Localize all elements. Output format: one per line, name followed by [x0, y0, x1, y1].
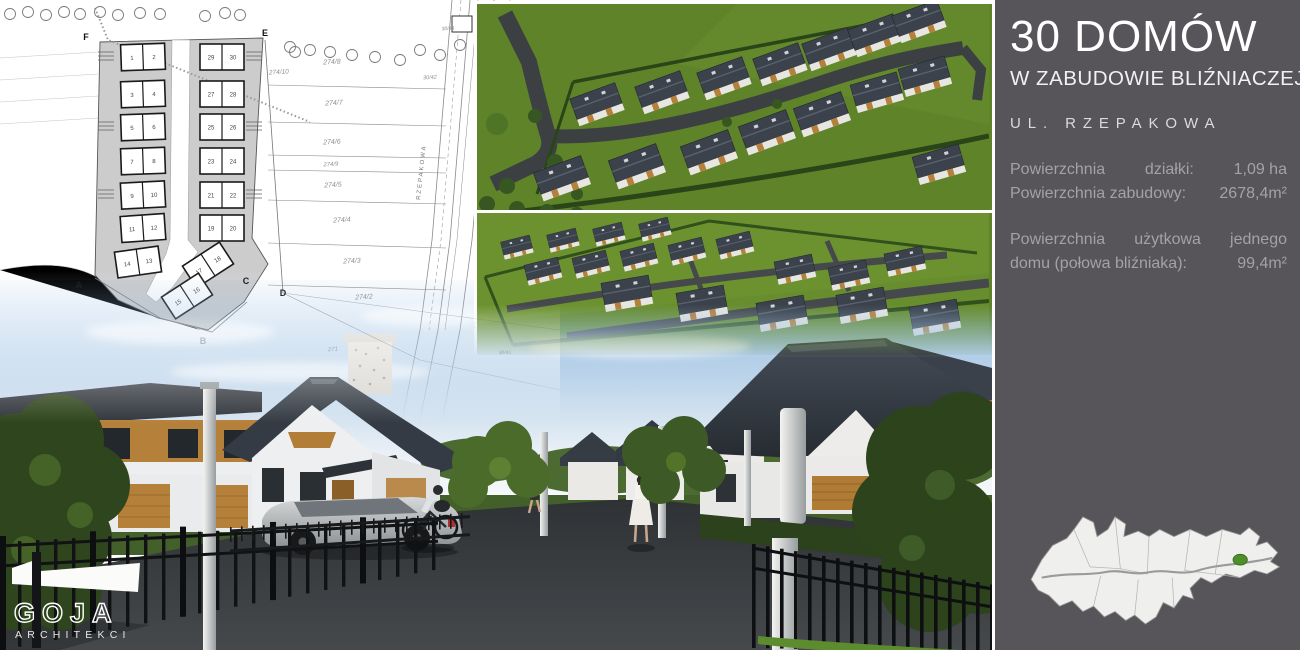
- spec-label: jednego: [1230, 228, 1287, 252]
- logo-roof-mark: [12, 559, 140, 592]
- parcel-number: 274/4: [332, 217, 351, 225]
- boundary-letter: B: [200, 336, 207, 346]
- fence-bar: [864, 563, 868, 650]
- fence-bar: [822, 556, 826, 650]
- spec-label: użytkowa: [1134, 228, 1201, 252]
- fence-bar: [342, 524, 345, 587]
- fence-bar: [439, 514, 441, 529]
- fence-bar: [324, 525, 327, 590]
- wood-accent: [690, 312, 697, 320]
- plot-number: 20: [230, 227, 237, 233]
- plot-number: 22: [230, 194, 237, 200]
- fence-bar: [780, 549, 784, 649]
- plot-number: 19: [208, 227, 215, 233]
- plot-number: 25: [208, 126, 215, 132]
- fence-bar: [285, 524, 287, 539]
- plot-duplex: 78: [121, 147, 166, 175]
- plot-duplex: 34: [121, 80, 166, 108]
- wood-accent: [770, 322, 777, 330]
- fence-bar: [414, 520, 417, 573]
- fence-bar: [263, 525, 265, 540]
- plot-number: 11: [129, 227, 136, 233]
- plot-duplex: 2122: [200, 182, 244, 208]
- plot-duplex: 910: [120, 181, 165, 209]
- plot-number: 28: [230, 93, 237, 99]
- wood-accent: [923, 326, 930, 334]
- fence-bar: [241, 526, 243, 541]
- plot-number: 21: [208, 194, 215, 200]
- info-panel: 30 DOMÓW W ZABUDOWIE BLIŹNIACZEJ UL. RZE…: [992, 0, 1300, 650]
- fence-bar: [808, 554, 812, 650]
- fence-bar: [962, 580, 966, 650]
- location-marker: [1233, 554, 1247, 565]
- fence-bar: [362, 519, 364, 534]
- spec-label: działki:: [1145, 158, 1194, 182]
- parcel-number: 274/10: [268, 68, 290, 76]
- fence-bar: [307, 522, 309, 537]
- fence-bar: [766, 546, 770, 648]
- fence-bar: [395, 517, 397, 532]
- fence-bar: [318, 522, 320, 537]
- plot-number: 10: [151, 193, 159, 199]
- fence-bar: [461, 513, 463, 528]
- pillar-right: [780, 408, 806, 524]
- spec-usable-line2: domu (połowa bliźniaka): 99,4m²: [1010, 252, 1287, 276]
- plot-number: 12: [151, 225, 159, 231]
- logo-name: GOJA: [14, 598, 119, 628]
- parcel-number: 30/42: [423, 75, 437, 82]
- plot-duplex: 1112: [120, 213, 166, 242]
- plot-duplex: 2728: [200, 81, 244, 107]
- fence-bar: [406, 516, 408, 531]
- fence-bar: [432, 520, 435, 571]
- spec-plot-area: Powierzchnia działki: 1,09 ha: [1010, 158, 1287, 182]
- plot-number: 24: [230, 160, 237, 166]
- parcel-number: 274/5: [323, 182, 342, 190]
- fence-bar: [230, 527, 232, 542]
- fence-bar: [417, 516, 419, 531]
- parcel-number: 271: [327, 347, 338, 354]
- plot-number: 23: [208, 160, 215, 166]
- spec-built-area: Powierzchnia zabudowy: 2678,4m²: [1010, 182, 1287, 206]
- fence-bar: [836, 558, 840, 649]
- aerial-view-top: [474, 1, 992, 213]
- plan-building: [452, 16, 472, 32]
- spec-value: 99,4m²: [1237, 252, 1287, 276]
- parcel-number: 274/3: [342, 258, 361, 266]
- plot-duplex: 2930: [200, 44, 244, 70]
- fence-bar: [794, 551, 798, 649]
- fence-bar: [934, 575, 938, 650]
- spec-block-usable: Powierzchnia użytkowa jednego domu (poło…: [1010, 228, 1287, 276]
- fence-bar: [948, 577, 952, 650]
- fence-bar: [340, 520, 342, 535]
- spec-block-areas: Powierzchnia działki: 1,09 ha Powierzchn…: [1010, 158, 1287, 206]
- wood-accent: [869, 311, 876, 319]
- fence-bar: [384, 518, 386, 533]
- wood-accent: [789, 319, 796, 327]
- wood-accent: [615, 302, 622, 310]
- parcel-number: 274/9: [322, 162, 339, 169]
- spec-label: Powierzchnia: [1010, 228, 1105, 252]
- krakow-map: [1009, 490, 1289, 642]
- project-title: 30 DOMÓW: [1010, 14, 1287, 60]
- fence-bar: [351, 520, 353, 535]
- spec-label: domu (połowa bliźniaka):: [1010, 252, 1187, 276]
- fence-post: [180, 527, 186, 617]
- fence-bar: [216, 531, 219, 610]
- spec-usable-line1: Powierzchnia użytkowa jednego: [1010, 228, 1287, 252]
- fence-bar: [892, 568, 896, 650]
- street-name: UL. RZEPAKOWA: [1010, 115, 1287, 132]
- plot-number: 27: [208, 93, 215, 99]
- goja-logo: GOJA ARCHITEKCI: [8, 552, 178, 648]
- project-subtitle: W ZABUDOWIE BLIŹNIACZEJ: [1010, 67, 1287, 91]
- fence-bar: [920, 573, 924, 650]
- fence-bar: [329, 521, 331, 536]
- fence-bar: [450, 514, 452, 529]
- parcel-number: 274/7: [324, 99, 344, 107]
- fence-bar: [976, 582, 980, 650]
- parcel-number: 274/6: [322, 139, 341, 147]
- aerial-view-bottom: [474, 213, 992, 358]
- fence-bar: [373, 518, 375, 533]
- fence-bar: [198, 532, 201, 614]
- fence-bar: [234, 530, 237, 607]
- spec-value: 1,09 ha: [1234, 158, 1287, 182]
- boundary-letter: F: [83, 32, 89, 42]
- spec-label: Powierzchnia: [1010, 158, 1105, 182]
- plot-duplex: 56: [121, 113, 166, 141]
- plot-duplex: 2526: [200, 114, 244, 140]
- presentation-board: 1234567891011121413293027282526232421221…: [0, 0, 1300, 650]
- fence-bar: [274, 524, 276, 539]
- boundary-letter: E: [262, 28, 268, 38]
- plot-number: 30: [230, 56, 237, 62]
- wood-accent: [850, 314, 857, 322]
- wood-accent: [709, 309, 716, 317]
- parcel-number: 274/2: [354, 294, 373, 302]
- plot-duplex: 2324: [200, 148, 244, 174]
- fence-bar: [428, 515, 430, 530]
- fence-bar: [752, 544, 756, 648]
- fence-bar: [252, 526, 254, 541]
- parcel-number: 30/43: [442, 26, 455, 33]
- plot-duplex: 12: [121, 43, 166, 71]
- wood-accent: [942, 323, 949, 331]
- fence-bar: [850, 561, 854, 650]
- boundary-letter: D: [280, 288, 287, 298]
- plot-duplex: 1920: [200, 215, 244, 241]
- plot-duplex: 1413: [114, 246, 161, 278]
- fence-bar: [296, 523, 298, 538]
- fence-bar: [906, 570, 910, 650]
- fence-post: [0, 536, 6, 650]
- plot-number: 29: [208, 56, 215, 62]
- boundary-letter: A: [76, 280, 83, 290]
- logo-tagline: ARCHITEKCI: [15, 629, 131, 641]
- plot-number: 26: [230, 126, 237, 132]
- fence-bar: [288, 527, 291, 597]
- spec-label: Powierzchnia zabudowy:: [1010, 182, 1186, 206]
- parcel-number: 274/8: [322, 59, 341, 67]
- fence-bar: [878, 565, 882, 650]
- wood-accent: [634, 299, 641, 307]
- spec-value: 2678,4m²: [1219, 182, 1287, 206]
- boundary-letter: C: [243, 276, 250, 286]
- fence-bar: [378, 522, 381, 580]
